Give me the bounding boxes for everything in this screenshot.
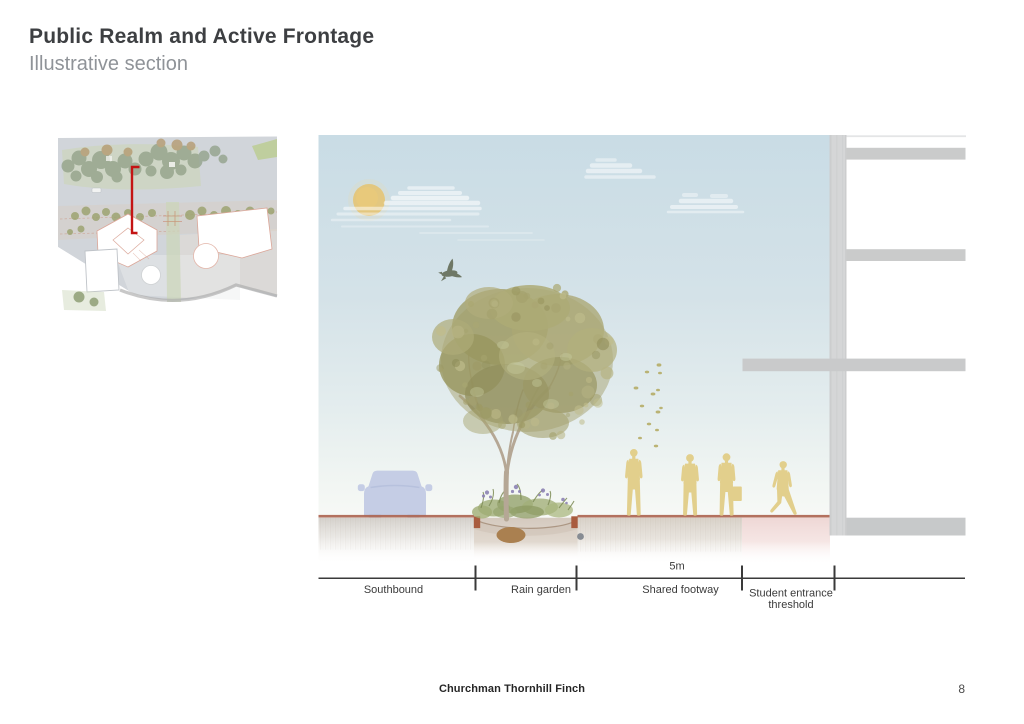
svg-text:Southbound: Southbound [364,584,423,596]
svg-text:Student entrance: Student entrance [749,588,833,600]
svg-text:Rain garden: Rain garden [511,584,571,596]
svg-text:threshold: threshold [768,599,813,611]
svg-text:Shared footway: Shared footway [642,584,719,596]
svg-text:5m: 5m [669,561,684,573]
